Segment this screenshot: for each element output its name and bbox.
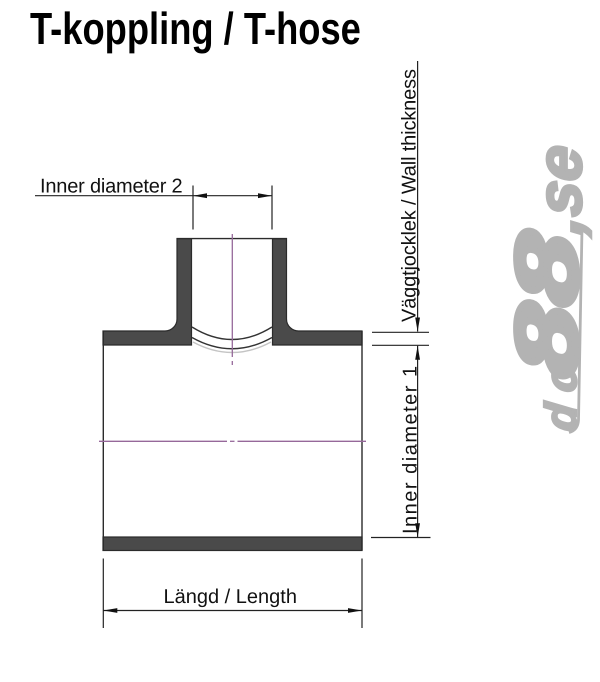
svg-text:Inner diameter 2: Inner diameter 2 — [40, 176, 183, 198]
svg-text:Inner diameter 1: Inner diameter 1 — [400, 364, 422, 534]
svg-text:,se: ,se — [525, 142, 595, 238]
svg-text:Längd / Length: Längd / Length — [164, 586, 297, 608]
svg-text:T-koppling / T-hose: T-koppling / T-hose — [30, 3, 361, 54]
svg-text:Väggtjocklek / Wall thickness: Väggtjocklek / Wall thickness — [399, 69, 421, 322]
